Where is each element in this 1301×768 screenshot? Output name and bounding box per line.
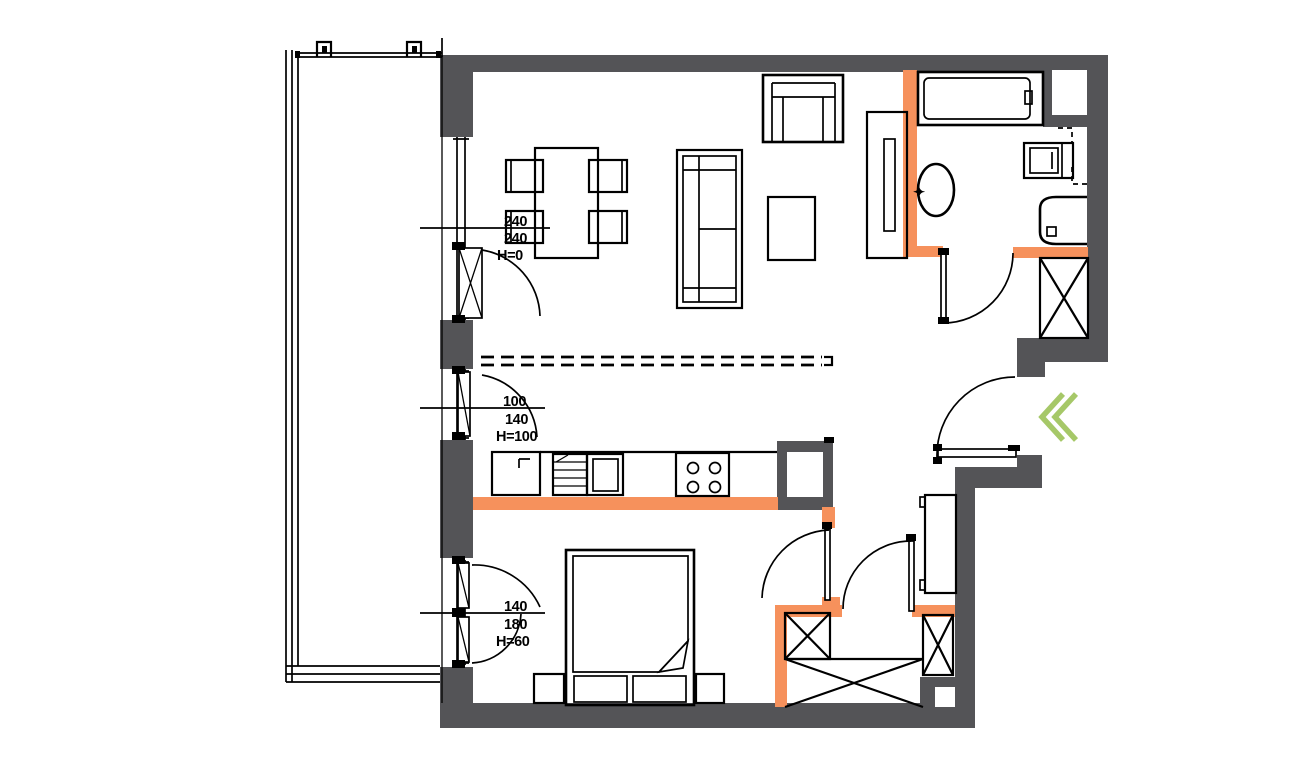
- floor-plan-canvas: 240 240 H=0 100 140 H=100 140 180 H=60: [0, 0, 1301, 768]
- bed: [566, 550, 694, 705]
- nightstand: [696, 674, 724, 703]
- hinge-block: [1008, 445, 1020, 451]
- wall-entrance-stub-right: [1043, 338, 1108, 362]
- tv-cabinet: [867, 112, 907, 258]
- storage-door: [843, 534, 916, 611]
- sofa: [677, 150, 742, 308]
- wall-right: [1087, 55, 1108, 362]
- pillow: [574, 676, 627, 702]
- balcony-post-1-pin: [322, 46, 327, 53]
- entrance-chevron-icon: [1042, 394, 1076, 440]
- door-swing-arc: [944, 253, 1013, 323]
- armchair-inner-lines: [772, 83, 835, 142]
- sofa-cushion-lines: [683, 156, 736, 302]
- ceiling-dashed-line: [481, 357, 832, 365]
- bathtub-faucet: [1025, 91, 1032, 104]
- rail-end-dot-right: [436, 51, 441, 58]
- coffee-table: [768, 197, 815, 260]
- dim-text: 140: [505, 412, 528, 428]
- hall-cabinet: [920, 495, 956, 593]
- wall-bottom: [440, 703, 975, 728]
- wall-top-left-corner: [440, 55, 473, 137]
- door-leaf: [909, 541, 914, 611]
- balcony-door-window: [452, 137, 540, 323]
- bathroom-west-wall: [903, 70, 917, 257]
- cabinet-outline: [925, 495, 956, 593]
- faucet-icon: ✦: [913, 185, 925, 201]
- hinge-block: [452, 242, 465, 250]
- dim-text: H=100: [496, 429, 537, 445]
- floor-plan-drawing: 240 240 H=0 100 140 H=100 140 180 H=60: [0, 0, 1301, 768]
- kitchen-south-wall: [473, 497, 778, 510]
- kitchen-sink-basin: [593, 459, 618, 491]
- nightstand: [534, 674, 564, 703]
- dashed-line-end-bracket: [824, 357, 832, 365]
- shaft-cross: [1040, 258, 1088, 338]
- bathroom-door: [938, 248, 1013, 324]
- mattress: [573, 556, 688, 672]
- entrance-door: [933, 377, 1020, 464]
- dim-text: 240: [504, 214, 527, 230]
- bathroom-south-wall-left: [903, 246, 943, 257]
- dim-text: 180: [504, 617, 527, 633]
- burner: [688, 463, 699, 474]
- fridge-handle: [519, 459, 530, 468]
- dim-text: 140: [504, 599, 527, 615]
- washing-machine-drum: [1030, 148, 1058, 173]
- bedroom-door: [762, 522, 832, 600]
- dim-text: H=0: [497, 248, 523, 264]
- wall-below-entrance-step: [1017, 455, 1042, 488]
- balcony-railing-left: [286, 50, 298, 682]
- bathtub-inner: [924, 78, 1030, 119]
- tv-cabinet-outline: [867, 112, 907, 258]
- kitchen: [492, 452, 777, 496]
- hinge-block: [452, 432, 465, 440]
- pillar-end-cap: [824, 437, 834, 443]
- hinge-block: [906, 534, 916, 541]
- closet-cross: [785, 613, 830, 659]
- pillow: [633, 676, 686, 702]
- plumbing-shaft: [1040, 258, 1088, 338]
- door-swing-arc: [843, 541, 911, 609]
- armchair-outline: [763, 75, 843, 142]
- hinge-block: [452, 366, 465, 374]
- hinge-block: [452, 315, 465, 323]
- kitchen-pillar-niche: [787, 452, 823, 497]
- balcony: [286, 38, 442, 703]
- dimension-annotations: 240 240 H=0 100 140 H=100 140 180 H=60: [420, 214, 550, 650]
- cabinet-tab: [920, 580, 925, 590]
- hinge-block: [452, 556, 465, 564]
- hinge-block: [822, 522, 832, 529]
- drainer-ribs: [554, 455, 586, 486]
- toilet: [1040, 197, 1087, 244]
- tv-screen-slot: [884, 139, 895, 231]
- closet-cross: [923, 615, 953, 675]
- burner: [688, 482, 699, 493]
- cabinet-tab: [920, 497, 925, 507]
- door-end-cap: [933, 457, 942, 464]
- burner: [710, 482, 721, 493]
- door-swing-arc: [937, 377, 1015, 457]
- burner: [710, 463, 721, 474]
- balcony-railing-bottom: [286, 666, 440, 682]
- dim-text: 240: [504, 231, 527, 247]
- dim-text: 100: [503, 394, 526, 410]
- closet-wide-cross: [785, 659, 923, 707]
- wall-hall-east: [955, 467, 975, 707]
- blanket-fold: [659, 641, 688, 672]
- hinge-block: [938, 248, 949, 255]
- fridge: [492, 452, 540, 495]
- wall-entrance-stub-left: [1017, 338, 1045, 377]
- armchair: [763, 75, 843, 142]
- wall-left-pier-2: [440, 440, 473, 558]
- dim-text: H=60: [496, 634, 530, 650]
- stove: [676, 453, 729, 496]
- exterior-walls: [440, 55, 1108, 728]
- hinge-block: [452, 660, 465, 668]
- balcony-post-2-pin: [412, 46, 417, 53]
- rail-end-dot-left: [295, 51, 300, 58]
- dashed-beam-lines: [481, 357, 822, 365]
- door-swing-arc: [762, 530, 829, 598]
- door-leaf: [938, 449, 1016, 457]
- door-leaf: [825, 529, 830, 600]
- wall-left-pier-1: [440, 320, 473, 369]
- wall-niche-top-right: [1052, 70, 1088, 115]
- wall-top: [440, 55, 1108, 72]
- wall-niche-bottom-right: [935, 687, 955, 707]
- door-leaf: [941, 253, 946, 323]
- bathroom-south-wall-right: [1013, 247, 1088, 258]
